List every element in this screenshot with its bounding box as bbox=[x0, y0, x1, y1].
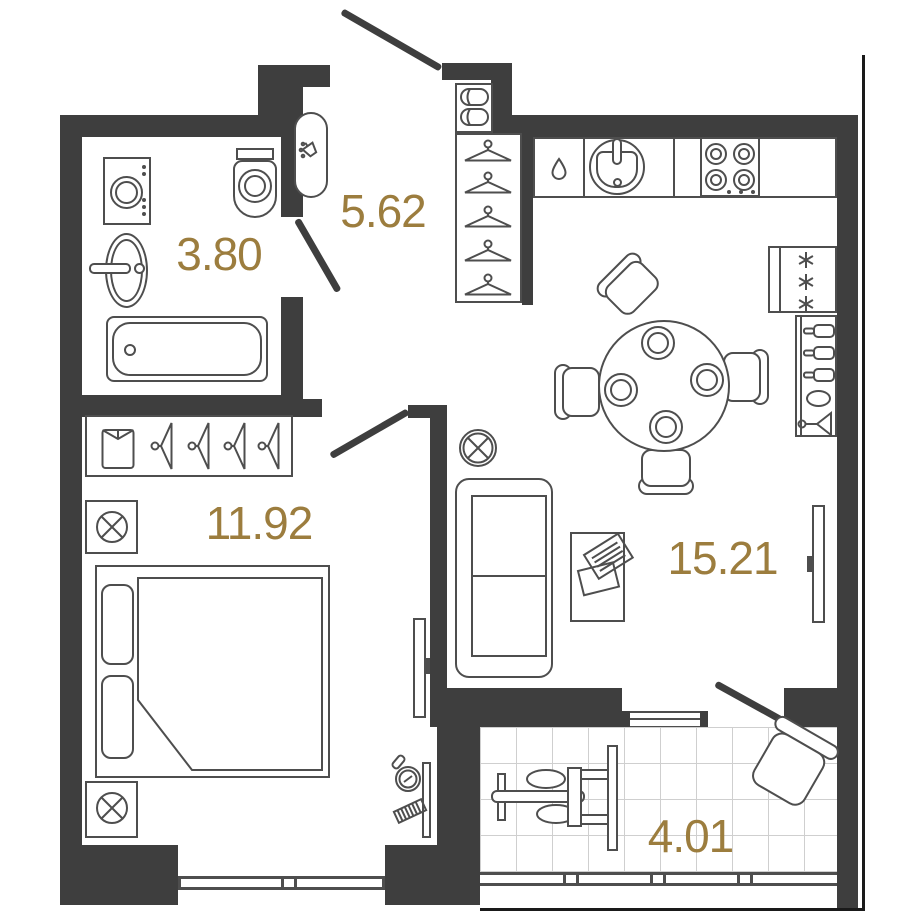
plate-inner bbox=[610, 379, 632, 401]
hanger-icon bbox=[460, 139, 516, 165]
burner-inner bbox=[738, 148, 750, 160]
hanger-icon bbox=[223, 418, 249, 474]
wall-stub-bedroom-door bbox=[303, 399, 322, 417]
bottle-icon bbox=[803, 368, 835, 382]
living-area-label: 15.21 bbox=[655, 535, 790, 581]
glazing-post bbox=[563, 872, 566, 885]
wall-bath-bedroom bbox=[82, 395, 303, 417]
burner-inner bbox=[710, 174, 722, 186]
bottle-icon bbox=[803, 324, 835, 338]
hanger-icon bbox=[460, 171, 516, 197]
balcony-glazing bbox=[480, 872, 837, 875]
balcony-glazing bbox=[480, 883, 837, 886]
bathtub-drain bbox=[124, 344, 136, 356]
folded-shirt-icon bbox=[101, 426, 135, 470]
water-drop-icon bbox=[551, 158, 567, 180]
exercise-machine bbox=[490, 742, 642, 860]
lamp-icon bbox=[94, 790, 130, 826]
kitchen-faucet bbox=[612, 138, 622, 165]
living-window-line bbox=[624, 718, 706, 720]
counter-divider bbox=[583, 139, 585, 196]
wall-entry-jamb-v bbox=[491, 80, 512, 137]
stove-knob bbox=[739, 190, 743, 194]
building-outline-bottom bbox=[480, 908, 865, 911]
bottle-icon bbox=[803, 346, 835, 360]
burner-inner bbox=[738, 174, 750, 186]
dining-chair bbox=[723, 352, 769, 402]
toilet-seat-inner bbox=[244, 175, 266, 197]
balcony-area-label: 4.01 bbox=[628, 813, 753, 859]
slippers-icon bbox=[458, 87, 490, 129]
wall-right-outer bbox=[837, 115, 858, 908]
bedroom-area-label: 11.92 bbox=[194, 500, 324, 546]
comb-icon bbox=[392, 797, 428, 825]
glazing-post bbox=[650, 872, 653, 885]
entrance-door-leaf bbox=[340, 8, 442, 71]
wall-hall-kitchen bbox=[522, 137, 533, 305]
sofa-cushion-divider bbox=[473, 575, 545, 577]
tv-mount bbox=[425, 658, 430, 674]
flask-icon bbox=[806, 390, 831, 407]
wall-balcony-left bbox=[437, 727, 480, 845]
building-outline-right bbox=[862, 55, 865, 911]
wall-bedroom-living bbox=[430, 405, 447, 688]
shower-head-icon bbox=[296, 134, 326, 168]
wall-left-outer bbox=[60, 115, 82, 905]
wine-glass-icon bbox=[797, 411, 835, 437]
hanger-icon bbox=[187, 418, 213, 474]
wm-button bbox=[142, 212, 146, 216]
fridge-door-line bbox=[779, 248, 781, 311]
burner-inner bbox=[710, 148, 722, 160]
toilet-tank bbox=[236, 148, 274, 160]
vent-icon bbox=[458, 428, 498, 468]
snowflake-icon bbox=[798, 296, 814, 312]
bathroom-faucet-knob bbox=[134, 263, 145, 274]
hand-mirror-icon bbox=[393, 754, 423, 794]
glazing-post bbox=[750, 872, 753, 885]
glazing-post bbox=[576, 872, 579, 885]
window-mullion bbox=[382, 876, 385, 889]
wm-button bbox=[142, 205, 146, 209]
wall-living-bottom bbox=[430, 688, 622, 727]
wm-button bbox=[142, 165, 146, 169]
wm-button bbox=[142, 198, 146, 202]
stove-knob bbox=[751, 190, 755, 194]
hallway-area-label: 5.62 bbox=[322, 188, 444, 234]
window-mullion bbox=[178, 876, 181, 889]
dining-chair bbox=[554, 367, 600, 417]
counter-divider bbox=[673, 139, 675, 196]
stove-knob bbox=[727, 190, 731, 194]
hanger-icon bbox=[460, 273, 516, 299]
dining-chair bbox=[595, 251, 663, 319]
hanger-icon bbox=[460, 239, 516, 265]
wall-entry-jamb-h bbox=[442, 63, 512, 80]
window-mullion bbox=[281, 876, 284, 889]
lamp-icon bbox=[94, 509, 130, 545]
newspaper-icon bbox=[574, 545, 626, 615]
bathroom-faucet bbox=[89, 263, 131, 274]
wm-button bbox=[142, 172, 146, 176]
window-cap bbox=[700, 711, 708, 728]
glazing-post bbox=[737, 872, 740, 885]
plate-inner bbox=[655, 416, 677, 438]
snowflake-icon bbox=[798, 274, 814, 290]
hanger-icon bbox=[460, 205, 516, 231]
wall-top-kitchen bbox=[512, 115, 858, 137]
floor-plan: 3.80 5.62 11.92 bbox=[0, 0, 921, 921]
bedroom-door-leaf bbox=[329, 408, 410, 459]
bathroom-area-label: 3.80 bbox=[158, 231, 280, 277]
tv-mount bbox=[807, 556, 812, 572]
blanket bbox=[95, 565, 330, 778]
hanger-icon bbox=[150, 418, 176, 474]
kitchen-counter bbox=[533, 137, 837, 198]
plate-inner bbox=[696, 369, 718, 391]
kitchen-sink-drain bbox=[613, 178, 622, 187]
window-mullion bbox=[294, 876, 297, 889]
dining-chair bbox=[641, 449, 691, 495]
wall-bottom-block-left bbox=[60, 845, 178, 905]
hanger-icon bbox=[257, 418, 283, 474]
wall-bottom-block-mid bbox=[385, 845, 480, 905]
washing-machine-drum-inner bbox=[115, 181, 138, 204]
snowflake-icon bbox=[798, 252, 814, 268]
glazing-post bbox=[663, 872, 666, 885]
wall-entry-nub bbox=[303, 65, 330, 87]
window-cap bbox=[622, 711, 630, 728]
living-tv bbox=[812, 505, 825, 623]
plate-inner bbox=[647, 332, 669, 354]
